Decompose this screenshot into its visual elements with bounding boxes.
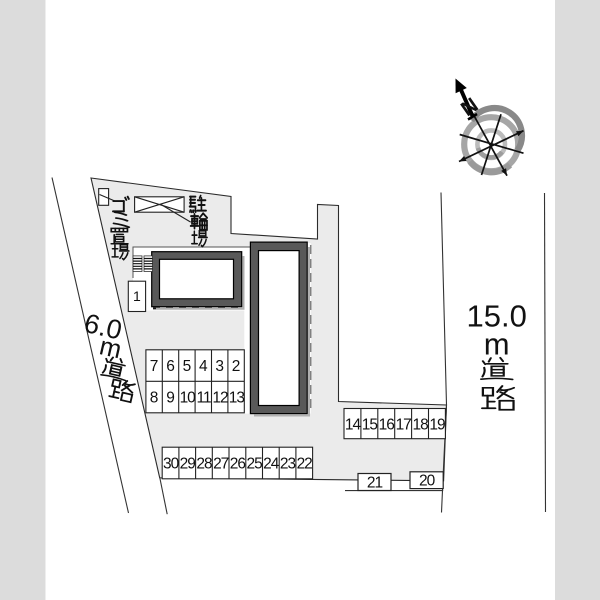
svg-text:11: 11 — [197, 389, 211, 406]
svg-text:19: 19 — [429, 417, 445, 434]
svg-text:24: 24 — [263, 456, 280, 473]
svg-text:25: 25 — [246, 456, 262, 473]
svg-text:29: 29 — [180, 456, 196, 473]
svg-text:12: 12 — [212, 389, 228, 406]
svg-text:27: 27 — [213, 456, 229, 473]
svg-text:m: m — [484, 327, 510, 362]
svg-text:9: 9 — [166, 389, 175, 406]
svg-text:2: 2 — [232, 358, 241, 375]
svg-text:3: 3 — [215, 358, 224, 375]
svg-text:23: 23 — [280, 456, 296, 473]
svg-text:22: 22 — [297, 456, 313, 473]
svg-text:20: 20 — [419, 473, 436, 490]
svg-text:6: 6 — [166, 358, 175, 375]
svg-text:28: 28 — [196, 456, 212, 473]
svg-text:21: 21 — [367, 475, 383, 492]
svg-text:17: 17 — [396, 417, 412, 434]
svg-text:7: 7 — [150, 358, 159, 375]
svg-text:14: 14 — [345, 417, 362, 434]
svg-text:13: 13 — [229, 389, 245, 406]
svg-text:10: 10 — [180, 389, 197, 406]
svg-text:26: 26 — [230, 456, 246, 473]
svg-text:18: 18 — [412, 417, 428, 434]
svg-text:4: 4 — [199, 358, 208, 375]
svg-text:15: 15 — [362, 417, 378, 434]
svg-text:1: 1 — [133, 288, 141, 304]
svg-text:5: 5 — [183, 358, 192, 375]
svg-text:8: 8 — [150, 389, 159, 406]
svg-text:30: 30 — [163, 456, 180, 473]
svg-text:16: 16 — [379, 417, 395, 434]
